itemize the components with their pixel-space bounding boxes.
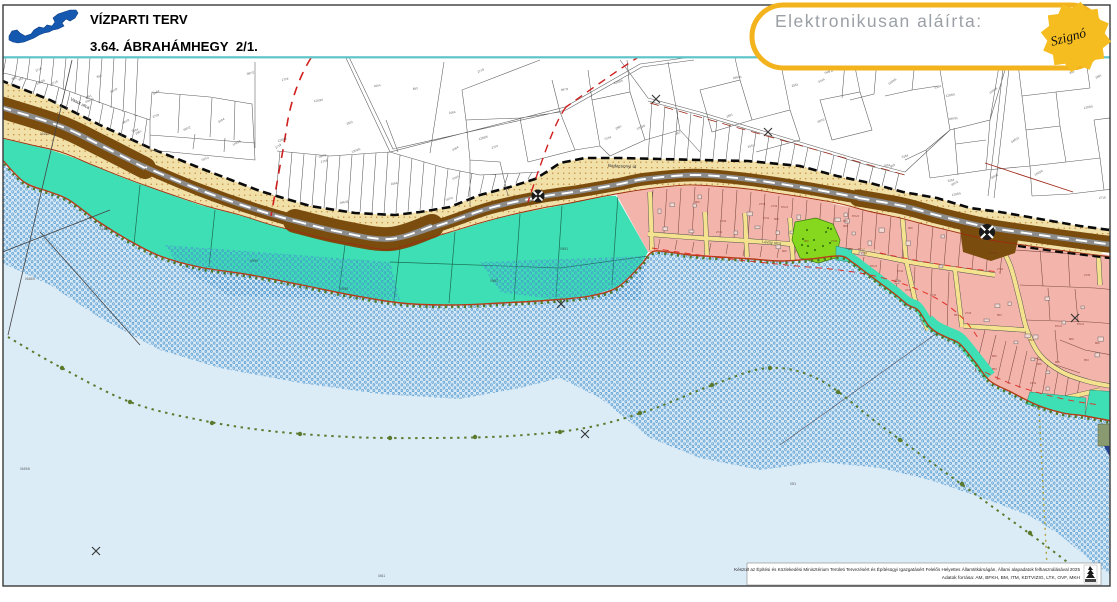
svg-text:Készült az Építési és Közleked: Készült az Építési és Közlekedési Minisz… [734,566,1080,572]
svg-text:871/2: 871/2 [990,251,997,255]
svg-text:0164: 0164 [374,83,381,88]
svg-text:0169/8: 0169/8 [20,467,30,471]
svg-text:2741: 2741 [1030,381,1037,385]
svg-text:866: 866 [848,247,853,251]
svg-text:871/2: 871/2 [1077,322,1084,326]
svg-text:853: 853 [954,313,959,317]
svg-text:0167/2: 0167/2 [100,227,110,231]
svg-text:2733: 2733 [831,239,838,243]
svg-text:0166/2: 0166/2 [40,132,50,136]
svg-text:3.64. ÁBRAHÁMHEGY 2/1.: 3.64. ÁBRAHÁMHEGY 2/1. [90,39,258,54]
svg-text:866: 866 [1069,337,1074,341]
svg-text:866: 866 [1055,360,1060,364]
svg-text:866: 866 [804,239,809,243]
svg-text:2741: 2741 [997,267,1004,271]
svg-text:853: 853 [1084,358,1089,362]
svg-text:2741: 2741 [895,279,902,283]
svg-text:853: 853 [1029,338,1034,342]
svg-text:09/58: 09/58 [340,287,348,291]
svg-text:866: 866 [992,354,997,358]
svg-text:2733: 2733 [1084,273,1091,277]
svg-text:853: 853 [992,367,997,371]
svg-text:853: 853 [997,313,1002,317]
svg-text:866: 866 [843,224,848,228]
svg-text:871/2: 871/2 [781,205,788,209]
svg-text:09/59: 09/59 [250,259,258,263]
svg-text:871/2: 871/2 [1055,324,1062,328]
svg-text:Badacsonyi út: Badacsonyi út [608,163,637,169]
svg-text:2741: 2741 [763,216,770,220]
svg-text:866: 866 [1095,341,1100,345]
svg-text:866: 866 [695,200,700,204]
svg-text:2741: 2741 [930,293,937,297]
svg-text:2733: 2733 [771,204,778,208]
svg-text:866: 866 [1037,362,1042,366]
svg-text:2719: 2719 [1099,195,1106,200]
svg-text:2741: 2741 [897,269,904,273]
svg-text:0168/5: 0168/5 [25,277,35,281]
svg-text:VÍZPARTI TERV: VÍZPARTI TERV [90,12,188,27]
svg-text:2733: 2733 [905,288,912,292]
svg-text:09/51: 09/51 [560,247,568,251]
svg-text:2733: 2733 [759,202,766,206]
svg-text:871/2: 871/2 [852,214,859,218]
svg-text:2733: 2733 [965,311,972,315]
svg-text:Elektronikusan aláírta:: Elektronikusan aláírta: [775,11,983,31]
svg-text:866: 866 [908,226,913,230]
svg-text:871/2: 871/2 [870,264,877,268]
svg-text:866: 866 [774,217,779,221]
svg-text:2733: 2733 [720,219,727,223]
svg-text:09/52: 09/52 [490,279,498,283]
svg-text:09/1: 09/1 [790,482,796,486]
svg-text:866: 866 [782,249,787,253]
svg-text:866: 866 [843,219,848,223]
svg-text:Adatok forrása: AM, BFKH, BM,: Adatok forrása: AM, BFKH, BM, ITM, KDTVI… [942,575,1081,581]
svg-text:2741: 2741 [716,230,723,234]
svg-text:0461: 0461 [378,574,385,578]
